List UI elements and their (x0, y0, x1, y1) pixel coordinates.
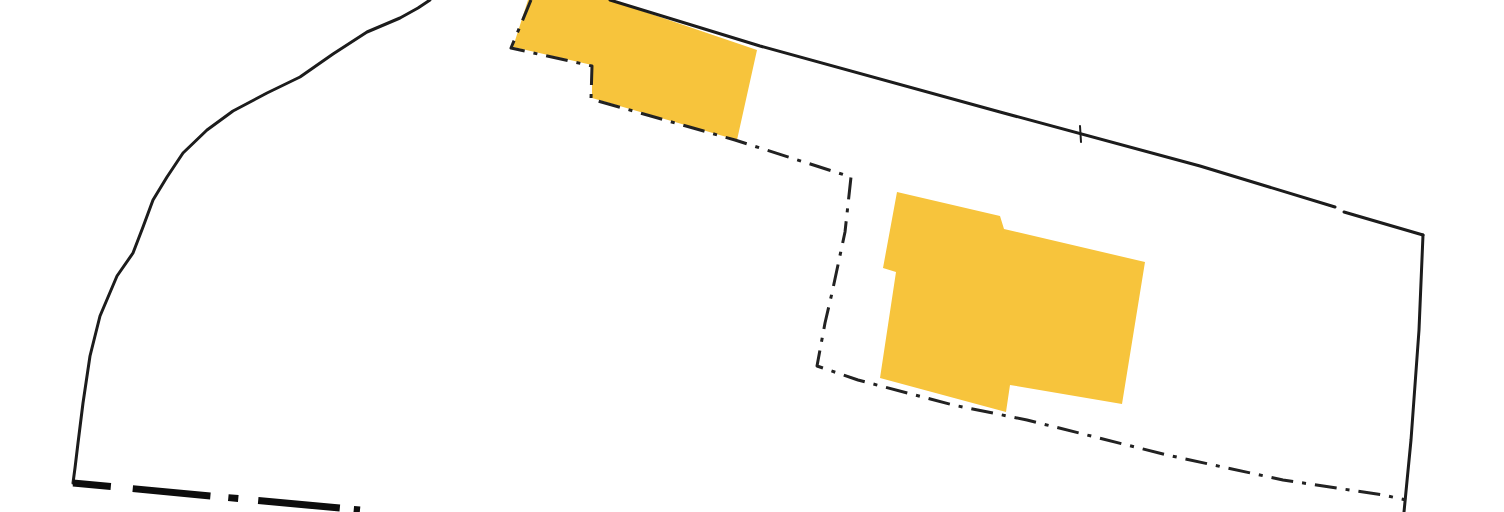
parcel-boundary-south-heavy (73, 483, 360, 510)
cadastral-map-svg (0, 0, 1504, 512)
building-footprint-central (880, 192, 1145, 412)
parcel-boundary-west-curve (73, 0, 430, 483)
building-footprint-north (513, 0, 757, 140)
parcel-boundary-east (1404, 235, 1423, 512)
parcel-boundary-north-continuation (1344, 212, 1423, 235)
survey-tick-north-boundary (1080, 126, 1081, 142)
map-viewport (0, 0, 1504, 512)
